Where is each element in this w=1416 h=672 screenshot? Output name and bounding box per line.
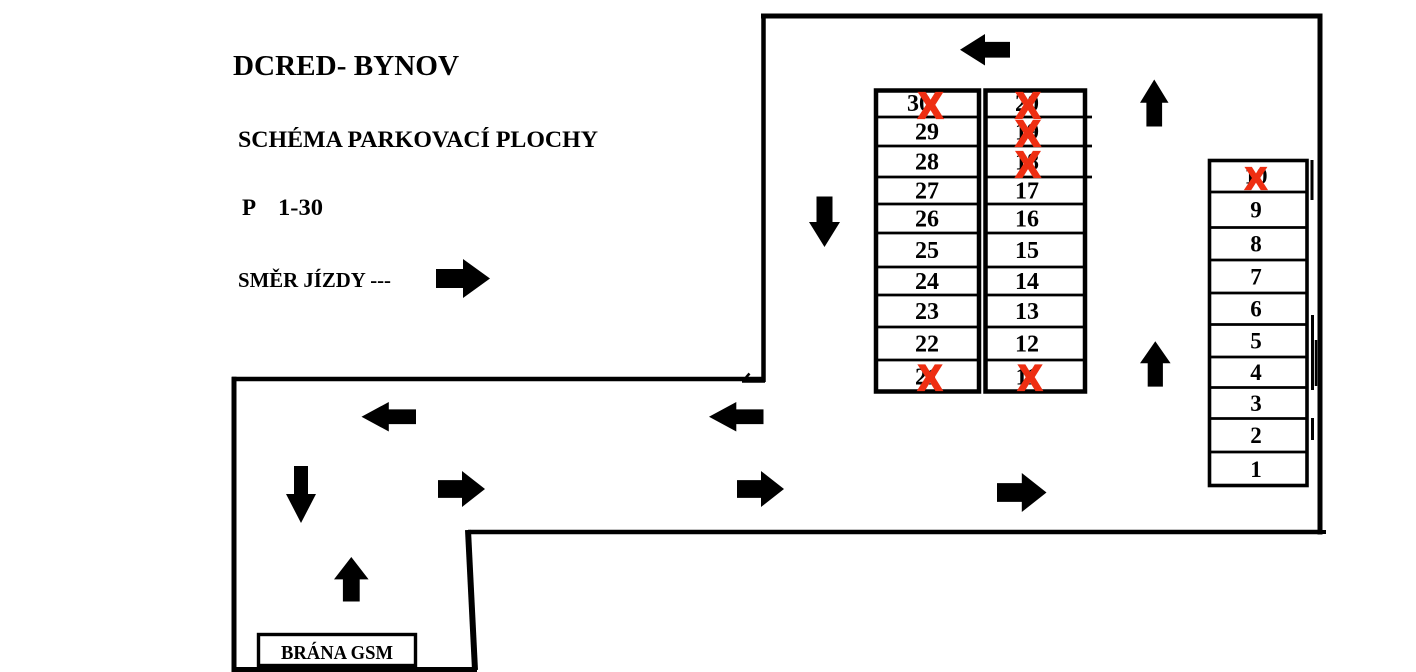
svg-text:14: 14 bbox=[1015, 269, 1039, 295]
svg-text:3: 3 bbox=[1250, 391, 1262, 416]
svg-text:9: 9 bbox=[1250, 198, 1262, 223]
svg-text:27: 27 bbox=[915, 179, 939, 205]
svg-text:26: 26 bbox=[915, 207, 939, 233]
svg-text:X: X bbox=[1018, 359, 1042, 398]
svg-text:X: X bbox=[1246, 161, 1267, 196]
svg-text:23: 23 bbox=[915, 299, 939, 325]
svg-text:SMĚR JÍZDY ---: SMĚR JÍZDY --- bbox=[238, 268, 391, 292]
svg-text:P: P bbox=[242, 195, 256, 220]
svg-text:8: 8 bbox=[1250, 232, 1262, 257]
svg-text:7: 7 bbox=[1250, 264, 1262, 289]
svg-text:12: 12 bbox=[1015, 332, 1039, 358]
svg-text:1-30: 1-30 bbox=[278, 195, 323, 220]
svg-text:24: 24 bbox=[915, 269, 939, 295]
svg-text:28: 28 bbox=[915, 150, 939, 176]
svg-text:6: 6 bbox=[1250, 297, 1262, 322]
svg-text:5: 5 bbox=[1250, 329, 1262, 354]
svg-text:X: X bbox=[918, 359, 942, 398]
svg-text:X: X bbox=[1016, 144, 1040, 185]
svg-text:BRÁNA GSM: BRÁNA GSM bbox=[281, 641, 393, 664]
svg-text:22: 22 bbox=[915, 332, 939, 358]
svg-text:X: X bbox=[918, 85, 942, 126]
svg-text:25: 25 bbox=[915, 238, 939, 264]
svg-text:16: 16 bbox=[1015, 207, 1039, 233]
svg-text:15: 15 bbox=[1015, 238, 1039, 264]
svg-text:1: 1 bbox=[1250, 457, 1262, 482]
svg-text:DCRED- BYNOV: DCRED- BYNOV bbox=[233, 50, 459, 82]
svg-text:4: 4 bbox=[1250, 360, 1262, 385]
svg-text:13: 13 bbox=[1015, 299, 1039, 325]
svg-text:2: 2 bbox=[1250, 423, 1262, 448]
svg-text:SCHÉMA PARKOVACÍ PLOCHY: SCHÉMA PARKOVACÍ PLOCHY bbox=[238, 127, 598, 152]
